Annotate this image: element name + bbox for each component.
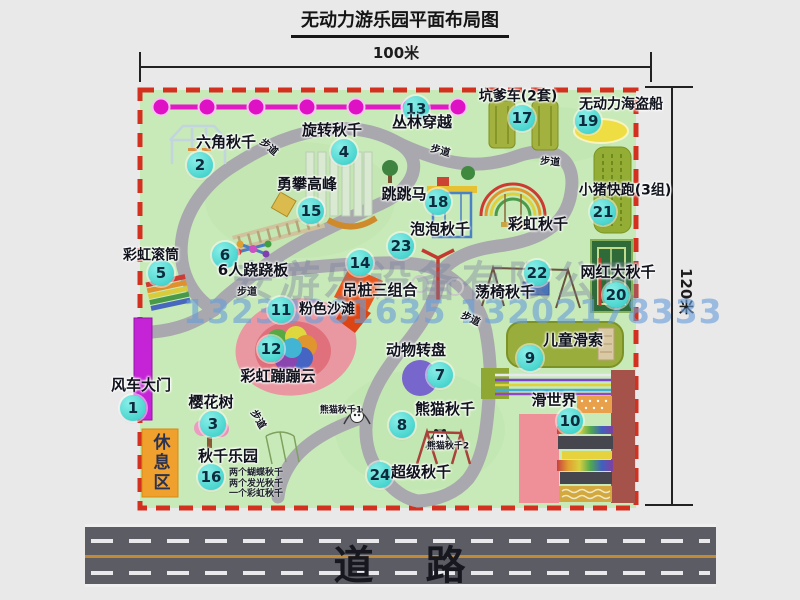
attraction-label-7: 动物转盘 (386, 343, 446, 359)
attraction-label-16: 秋千乐园 (198, 449, 258, 465)
swing-park-note-3: 一个彩虹秋千 (229, 486, 283, 499)
attraction-label-12: 彩虹蹦蹦云 (240, 369, 315, 385)
rainbow-swing-label: 彩虹秋千 (508, 217, 568, 233)
attraction-label-22: 荡椅秋千 (475, 285, 535, 301)
attraction-marker-21: 21 (590, 199, 616, 225)
attraction-label-13: 丛林穿越 (392, 115, 452, 131)
attraction-marker-7: 7 (427, 362, 453, 388)
road-label: 道 路 (85, 533, 716, 591)
walkway-label: 步道 (247, 409, 266, 432)
attraction-label-14: 吊桩三组合 (342, 283, 417, 299)
attraction-marker-24: 24 (367, 462, 393, 488)
panda-swing-1-label: 熊猫秋千1 (320, 406, 362, 415)
walkway-label: 步道 (237, 288, 257, 299)
attraction-marker-10: 10 (557, 408, 583, 434)
attraction-label-19: 无动力海盗船 (579, 98, 663, 113)
label-layer: 1风车大门2六角秋千3樱花树4旋转秋千5彩虹滚筒66人跷跷板7动物转盘8熊猫秋千… (0, 0, 800, 600)
attraction-marker-17: 17 (509, 105, 535, 131)
attraction-marker-5: 5 (148, 260, 174, 286)
road: 道 路 (85, 524, 716, 587)
attraction-label-10: 滑世界 (531, 393, 576, 409)
attraction-marker-1: 1 (120, 395, 146, 421)
attraction-label-23: 泡泡秋千 (410, 222, 470, 238)
attraction-label-5: 彩虹滚筒 (123, 249, 179, 264)
attraction-marker-9: 9 (517, 345, 543, 371)
attraction-label-15: 勇攀高峰 (277, 177, 337, 193)
attraction-marker-12: 12 (258, 336, 284, 362)
attraction-marker-2: 2 (187, 152, 213, 178)
attraction-marker-20: 20 (603, 282, 629, 308)
park-plan-canvas: 无动力游乐园平面布局图 100米 120米 安游乐设备有限公司 13233861… (0, 0, 800, 600)
attraction-label-18: 跳跳马 (381, 187, 426, 203)
attraction-label-24: 超级秋千 (391, 465, 451, 481)
attraction-marker-14: 14 (347, 250, 373, 276)
attraction-marker-4: 4 (331, 139, 357, 165)
attraction-marker-16: 16 (198, 464, 224, 490)
walkway-label: 步道 (429, 144, 451, 159)
walkway-label: 步道 (540, 157, 561, 169)
attraction-marker-15: 15 (298, 198, 324, 224)
attraction-label-6: 6人跷跷板 (218, 263, 288, 279)
panda-swing-2-label: 熊猫秋千2 (427, 442, 469, 451)
attraction-marker-8: 8 (389, 412, 415, 438)
walkway-label: 步道 (257, 138, 279, 159)
attraction-label-21: 小猪快跑(3组) (579, 184, 672, 199)
attraction-marker-3: 3 (200, 411, 226, 437)
attraction-label-20: 网红大秋千 (580, 265, 655, 281)
attraction-label-8: 熊猫秋千 (415, 402, 475, 418)
attraction-label-1: 风车大门 (111, 378, 171, 394)
attraction-label-3: 樱花树 (188, 395, 233, 411)
attraction-label-17: 坑爹车(2套) (479, 90, 558, 105)
walkway-label: 步道 (459, 311, 482, 329)
attraction-label-2: 六角秋千 (196, 135, 256, 151)
attraction-marker-11: 11 (268, 297, 294, 323)
attraction-label-11: 粉色沙滩 (299, 303, 355, 318)
attraction-marker-18: 18 (425, 189, 451, 215)
attraction-label-9: 儿童滑索 (543, 333, 603, 349)
attraction-label-4: 旋转秋千 (302, 123, 362, 139)
attraction-marker-22: 22 (524, 260, 550, 286)
